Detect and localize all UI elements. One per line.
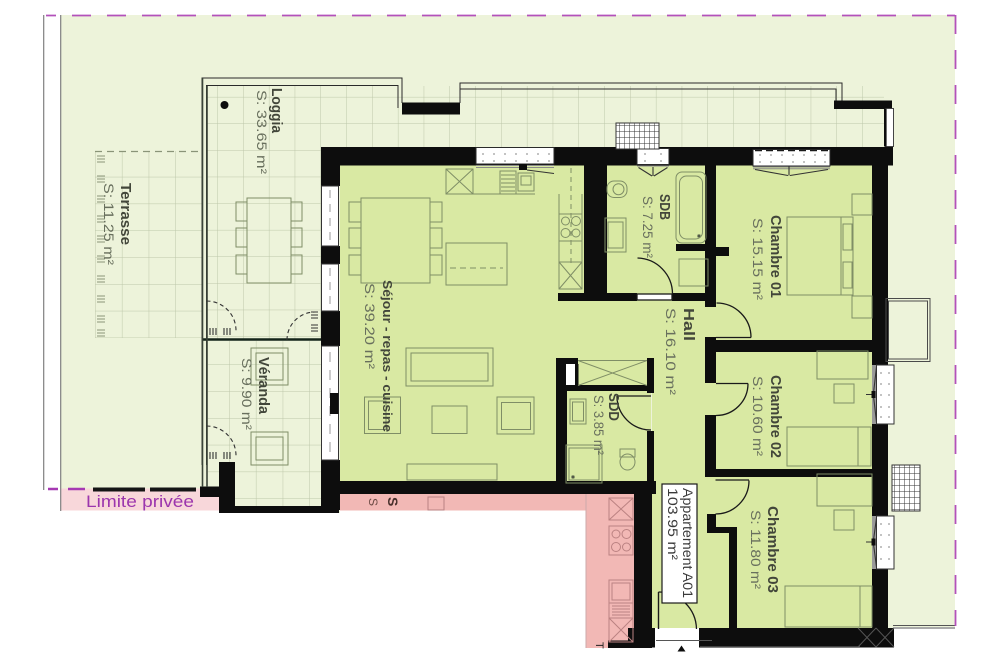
svg-text:S: S bbox=[385, 497, 401, 506]
svg-text:S: 9.90 m²: S: 9.90 m² bbox=[239, 358, 255, 430]
svg-text:S: 7.25 m²: S: 7.25 m² bbox=[640, 196, 656, 258]
svg-text:S: 16.10 m²: S: 16.10 m² bbox=[663, 308, 679, 395]
svg-text:Limite privée: Limite privée bbox=[86, 492, 194, 511]
svg-text:Chambre 02: Chambre 02 bbox=[767, 375, 784, 458]
svg-text:Appartement A01: Appartement A01 bbox=[680, 488, 695, 598]
svg-text:S: 33.65 m²: S: 33.65 m² bbox=[254, 90, 270, 174]
svg-text:S: 10.60 m²: S: 10.60 m² bbox=[750, 376, 766, 456]
svg-text:T: T bbox=[593, 642, 605, 649]
svg-text:Séjour - repas - cuisine: Séjour - repas - cuisine bbox=[380, 280, 395, 432]
svg-text:Véranda: Véranda bbox=[255, 357, 272, 415]
svg-text:S: 11.25 m²: S: 11.25 m² bbox=[101, 183, 117, 265]
svg-text:SDB: SDB bbox=[656, 194, 672, 220]
svg-text:S: 15.15 m²: S: 15.15 m² bbox=[750, 218, 766, 300]
svg-text:103.95 m²: 103.95 m² bbox=[665, 488, 680, 561]
svg-text:S: 39.20 m²: S: 39.20 m² bbox=[362, 283, 378, 369]
svg-text:Chambre 01: Chambre 01 bbox=[767, 215, 784, 298]
svg-text:S: S bbox=[366, 498, 380, 506]
svg-text:Terrasse: Terrasse bbox=[117, 183, 134, 245]
svg-text:Chambre 03: Chambre 03 bbox=[764, 506, 781, 593]
svg-text:S: 3.85 m²: S: 3.85 m² bbox=[591, 395, 607, 455]
svg-text:S: 11.80 m²: S: 11.80 m² bbox=[748, 510, 764, 589]
svg-text:Hall: Hall bbox=[680, 308, 697, 341]
